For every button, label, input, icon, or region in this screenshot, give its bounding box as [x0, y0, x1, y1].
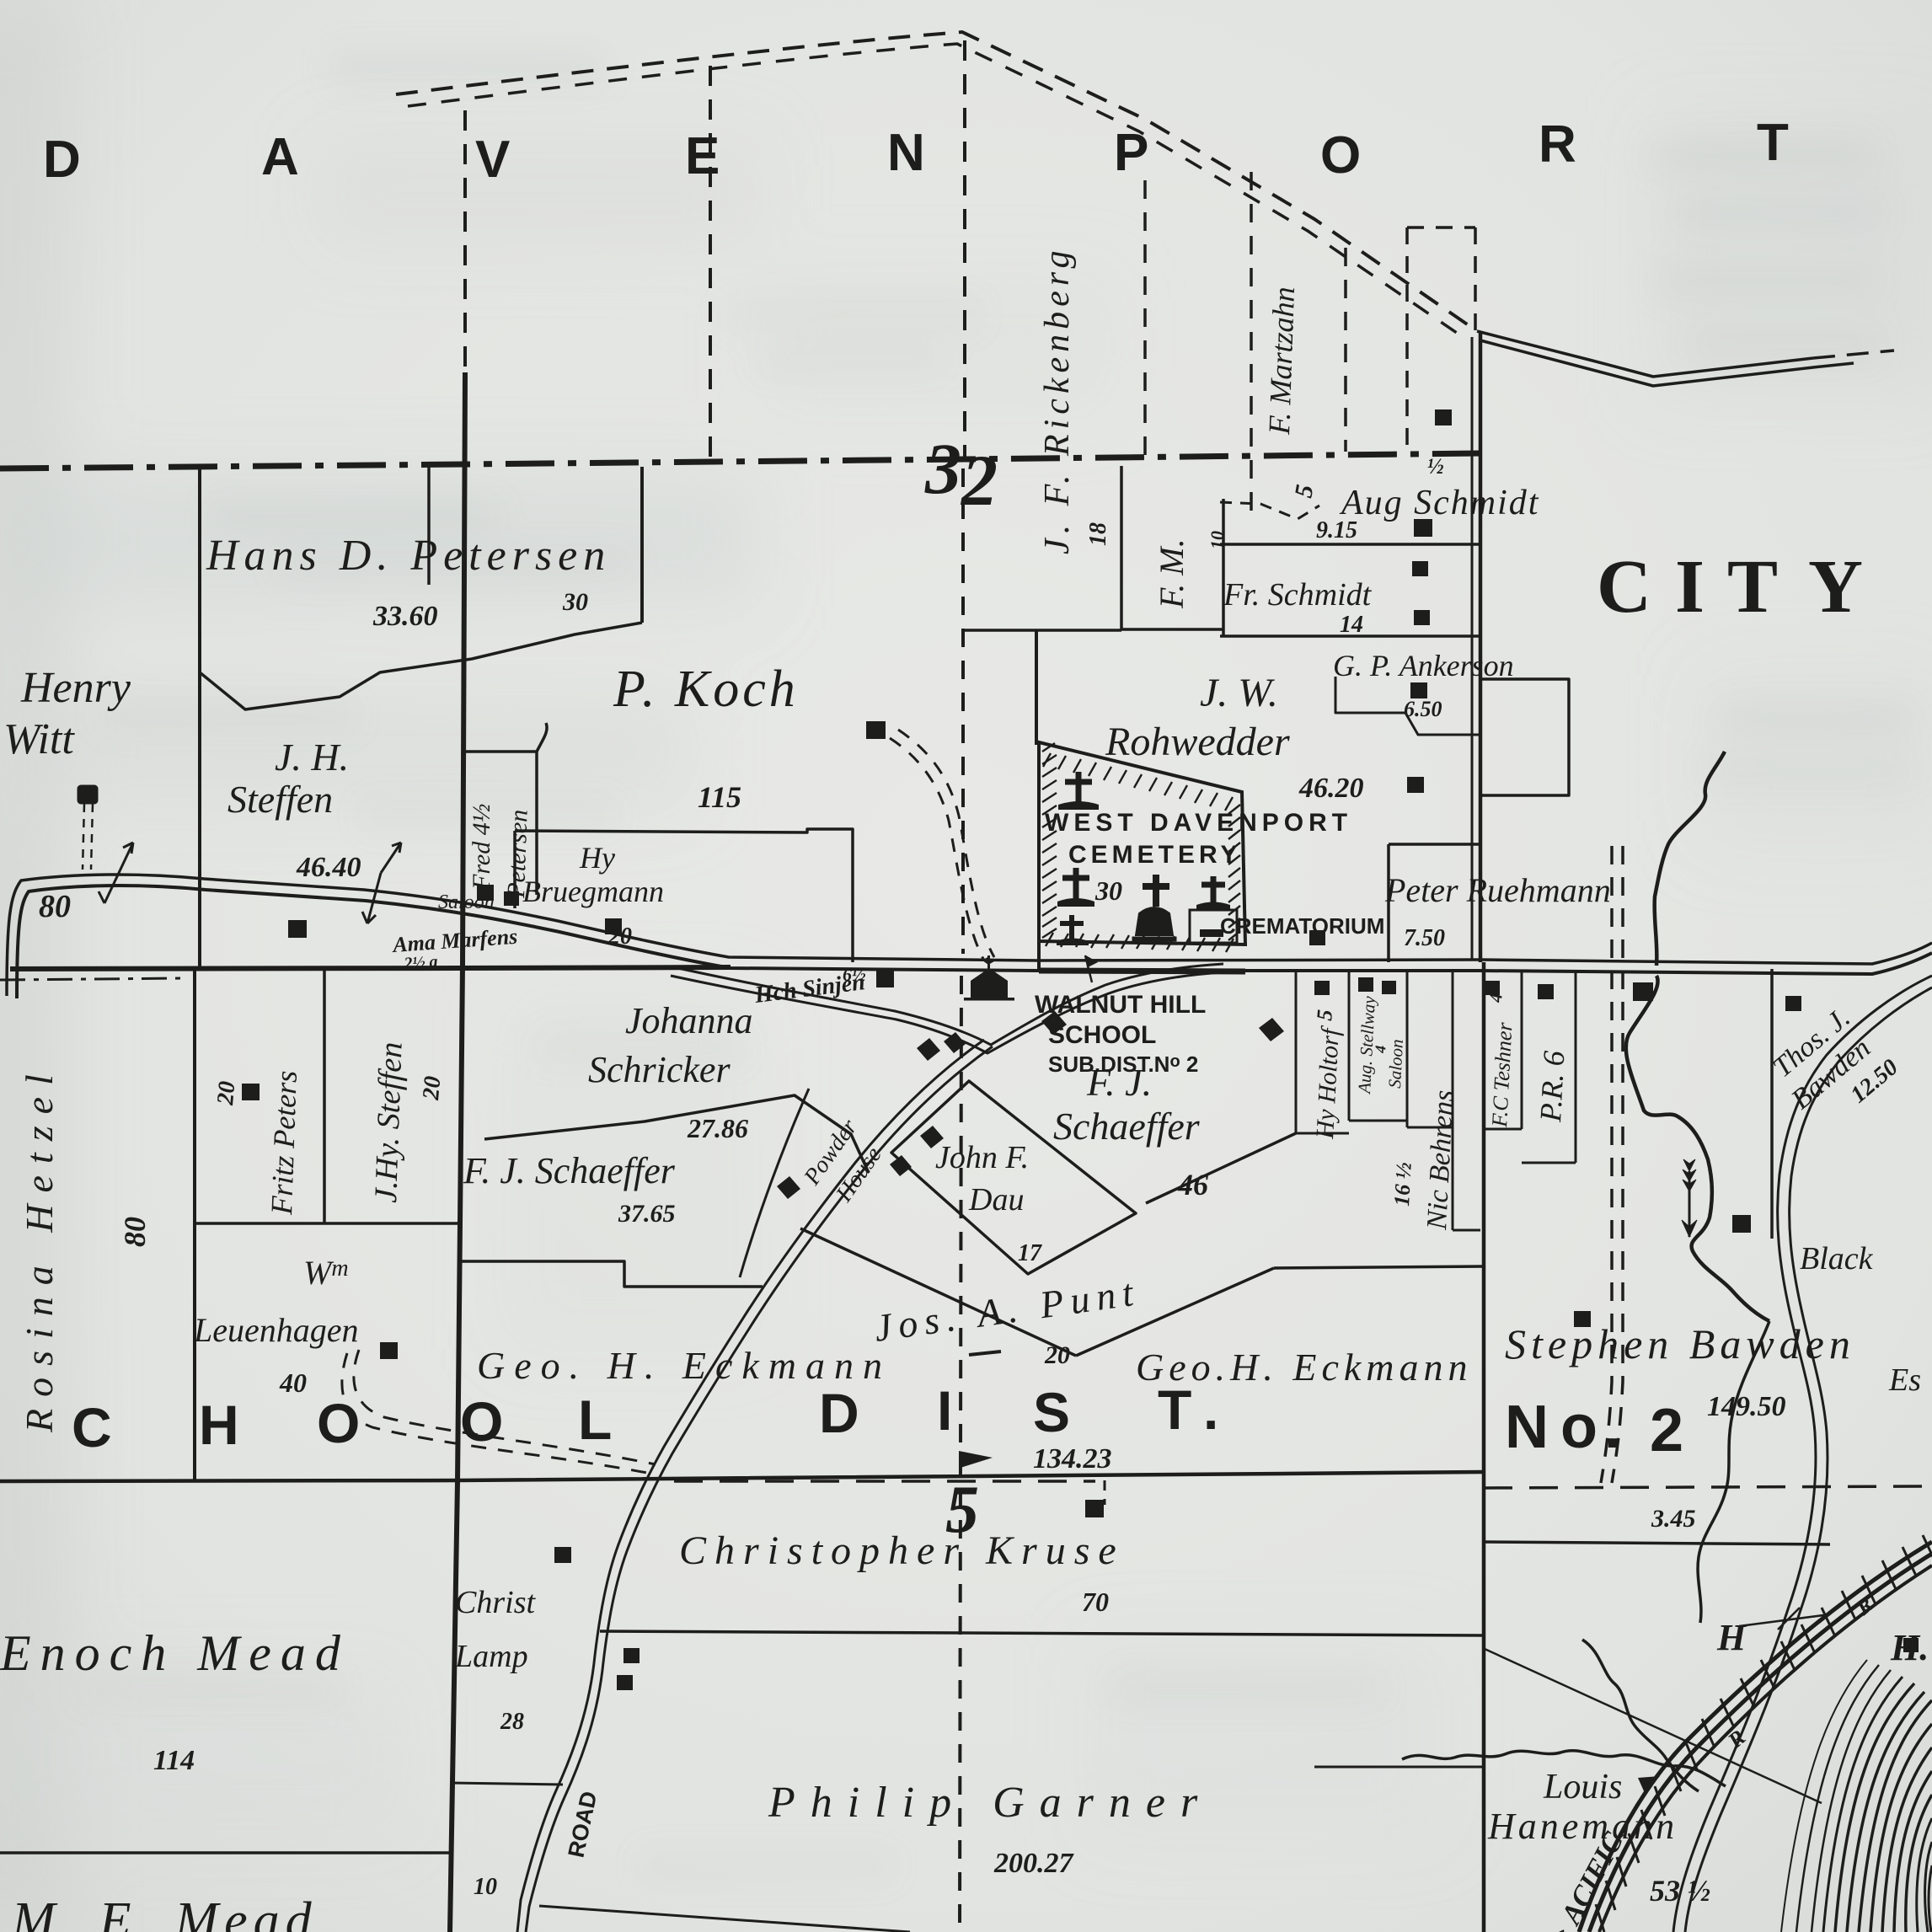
svg-text:SCHOOL: SCHOOL	[1048, 1021, 1156, 1049]
svg-text:D: D	[43, 131, 81, 189]
svg-text:20: 20	[418, 1075, 446, 1102]
svg-text:53 ½: 53 ½	[1650, 1874, 1710, 1908]
svg-text:134.23: 134.23	[1033, 1443, 1112, 1474]
svg-text:Saloon: Saloon	[438, 891, 495, 913]
svg-text:J. F. Rickenberg: J. F. Rickenberg	[1038, 245, 1077, 554]
svg-text:Christopher Kruse: Christopher Kruse	[679, 1528, 1125, 1573]
svg-text:H.: H.	[1890, 1627, 1929, 1668]
svg-text:P. Koch: P. Koch	[613, 661, 799, 718]
svg-text:32: 32	[924, 428, 998, 521]
svg-text:114: 114	[153, 1745, 195, 1776]
svg-text:C: C	[1597, 545, 1651, 629]
svg-text:Johanna: Johanna	[625, 1000, 753, 1041]
svg-text:40: 40	[279, 1367, 307, 1398]
svg-text:J. H.: J. H.	[275, 736, 349, 779]
svg-text:CREMATORIUM: CREMATORIUM	[1220, 913, 1384, 939]
svg-text:2: 2	[1650, 1397, 1683, 1464]
svg-text:17: 17	[1018, 1240, 1042, 1266]
svg-text:Rohwedder: Rohwedder	[1105, 720, 1290, 764]
svg-text:46.40: 46.40	[296, 852, 361, 883]
svg-text:H: H	[1716, 1617, 1747, 1658]
svg-text:L: L	[578, 1389, 612, 1451]
svg-text:Aug Schmidt: Aug Schmidt	[1339, 484, 1539, 522]
svg-text:3.45: 3.45	[1651, 1505, 1696, 1533]
svg-text:E: E	[685, 127, 720, 185]
svg-text:F. J.: F. J.	[1086, 1061, 1152, 1104]
svg-text:Schricker: Schricker	[588, 1049, 731, 1090]
svg-text:P: P	[1114, 124, 1148, 182]
svg-text:4: 4	[1485, 993, 1507, 1003]
svg-text:27.86: 27.86	[687, 1113, 748, 1143]
svg-text:N: N	[887, 124, 925, 182]
svg-text:Bruegmann: Bruegmann	[522, 875, 664, 908]
svg-text:7.50: 7.50	[1404, 925, 1445, 951]
svg-text:N: N	[1505, 1394, 1549, 1461]
svg-text:Louis: Louis	[1543, 1768, 1622, 1806]
svg-text:Fr. Schmidt: Fr. Schmidt	[1223, 577, 1373, 613]
svg-text:33.60: 33.60	[372, 601, 438, 632]
svg-text:O: O	[317, 1392, 360, 1454]
svg-text:M. E. Mead: M. E. Mead	[11, 1892, 318, 1932]
svg-text:Peter Ruehmann: Peter Ruehmann	[1384, 871, 1611, 909]
svg-text:Witt: Witt	[3, 715, 75, 763]
svg-text:WEST DAVENPORT: WEST DAVENPORT	[1045, 809, 1352, 837]
svg-text:20: 20	[607, 923, 632, 950]
svg-text:37.65: 37.65	[618, 1200, 676, 1228]
svg-text:G. P. Ankerson: G. P. Ankerson	[1333, 649, 1514, 682]
svg-text:Es: Es	[1888, 1362, 1921, 1398]
svg-text:J. W.: J. W.	[1200, 671, 1278, 715]
svg-text:16 ½: 16 ½	[1389, 1162, 1416, 1207]
svg-text:70: 70	[1082, 1587, 1109, 1617]
svg-text:Leuenhagen: Leuenhagen	[193, 1311, 359, 1349]
svg-text:I: I	[1675, 545, 1705, 629]
svg-text:Enoch Mead: Enoch Mead	[0, 1625, 350, 1681]
svg-text:46.20: 46.20	[1298, 773, 1364, 804]
svg-text:9.15: 9.15	[1316, 517, 1357, 543]
svg-text:Dau: Dau	[968, 1182, 1024, 1218]
svg-text:Philip Garner: Philip Garner	[768, 1779, 1212, 1827]
svg-text:J.Hy. Steffen: J.Hy. Steffen	[368, 1041, 409, 1203]
svg-text:200.27: 200.27	[993, 1848, 1075, 1879]
svg-text:D: D	[819, 1382, 859, 1444]
svg-text:6½: 6½	[843, 964, 866, 985]
svg-text:46: 46	[1177, 1168, 1208, 1201]
svg-text:I: I	[937, 1379, 952, 1442]
svg-text:O: O	[1320, 126, 1361, 185]
svg-text:Saloon: Saloon	[1384, 1039, 1407, 1089]
svg-text:30: 30	[1094, 875, 1122, 906]
svg-text:28: 28	[500, 1709, 524, 1735]
svg-text:F. Martzahn: F. Martzahn	[1262, 286, 1301, 436]
svg-text:O: O	[460, 1390, 503, 1453]
svg-text:10: 10	[1207, 531, 1228, 549]
svg-text:Rosina Hetzel: Rosina Hetzel	[18, 1062, 61, 1433]
svg-text:Fritz Peters: Fritz Peters	[265, 1070, 303, 1216]
svg-text:S: S	[1033, 1381, 1070, 1443]
svg-text:John F.: John F.	[935, 1140, 1029, 1175]
svg-text:H: H	[199, 1394, 239, 1456]
svg-text:Schaeffer: Schaeffer	[1053, 1105, 1201, 1148]
svg-text:Hans D. Petersen: Hans D. Petersen	[206, 532, 611, 580]
svg-text:WALNUT HILL: WALNUT HILL	[1035, 991, 1206, 1019]
svg-text:½: ½	[1427, 454, 1444, 479]
svg-text:10: 10	[474, 1874, 497, 1900]
svg-text:Lamp: Lamp	[454, 1639, 528, 1674]
svg-text:Steffen: Steffen	[227, 778, 333, 821]
svg-text:20: 20	[212, 1080, 240, 1107]
svg-text:F. M.: F. M.	[1153, 538, 1191, 609]
svg-text:30: 30	[562, 588, 588, 616]
svg-text:Henry: Henry	[20, 664, 131, 712]
svg-text:5: 5	[1312, 1009, 1337, 1021]
svg-text:CEMETERY: CEMETERY	[1068, 841, 1242, 869]
svg-text:Y: Y	[1808, 545, 1863, 629]
svg-text:F. J. Schaeffer: F. J. Schaeffer	[463, 1150, 676, 1191]
svg-text:.: .	[1604, 1394, 1621, 1461]
svg-text:149.50: 149.50	[1707, 1391, 1786, 1422]
svg-text:Stephen Bawden: Stephen Bawden	[1505, 1320, 1855, 1367]
svg-text:80: 80	[39, 889, 71, 924]
svg-text:6.50: 6.50	[1404, 697, 1442, 721]
svg-text:V: V	[475, 131, 510, 189]
svg-text:2½ a: 2½ a	[403, 952, 438, 973]
svg-text:T: T	[1727, 545, 1778, 629]
svg-text:115: 115	[698, 780, 741, 814]
svg-text:20: 20	[1044, 1341, 1070, 1369]
svg-text:80: 80	[118, 1217, 152, 1247]
svg-text:T: T	[1757, 114, 1789, 172]
svg-text:Hy: Hy	[579, 841, 615, 875]
svg-text:P.R. 6: P.R. 6	[1533, 1050, 1571, 1123]
svg-text:Geo. H. Eckmann: Geo. H. Eckmann	[477, 1344, 891, 1387]
svg-text:18: 18	[1085, 522, 1111, 546]
svg-text:14: 14	[1340, 612, 1363, 638]
svg-text:A: A	[261, 128, 299, 186]
svg-text:Fred 4½: Fred 4½	[468, 804, 495, 891]
svg-text:Hanemann: Hanemann	[1487, 1806, 1678, 1847]
svg-text:o: o	[1560, 1394, 1598, 1461]
svg-text:Christ: Christ	[455, 1585, 536, 1620]
svg-text:R: R	[1539, 115, 1576, 174]
svg-text:Geo.H. Eckmann: Geo.H. Eckmann	[1136, 1346, 1473, 1389]
svg-text:C: C	[72, 1396, 112, 1458]
svg-text:Black: Black	[1800, 1241, 1874, 1276]
